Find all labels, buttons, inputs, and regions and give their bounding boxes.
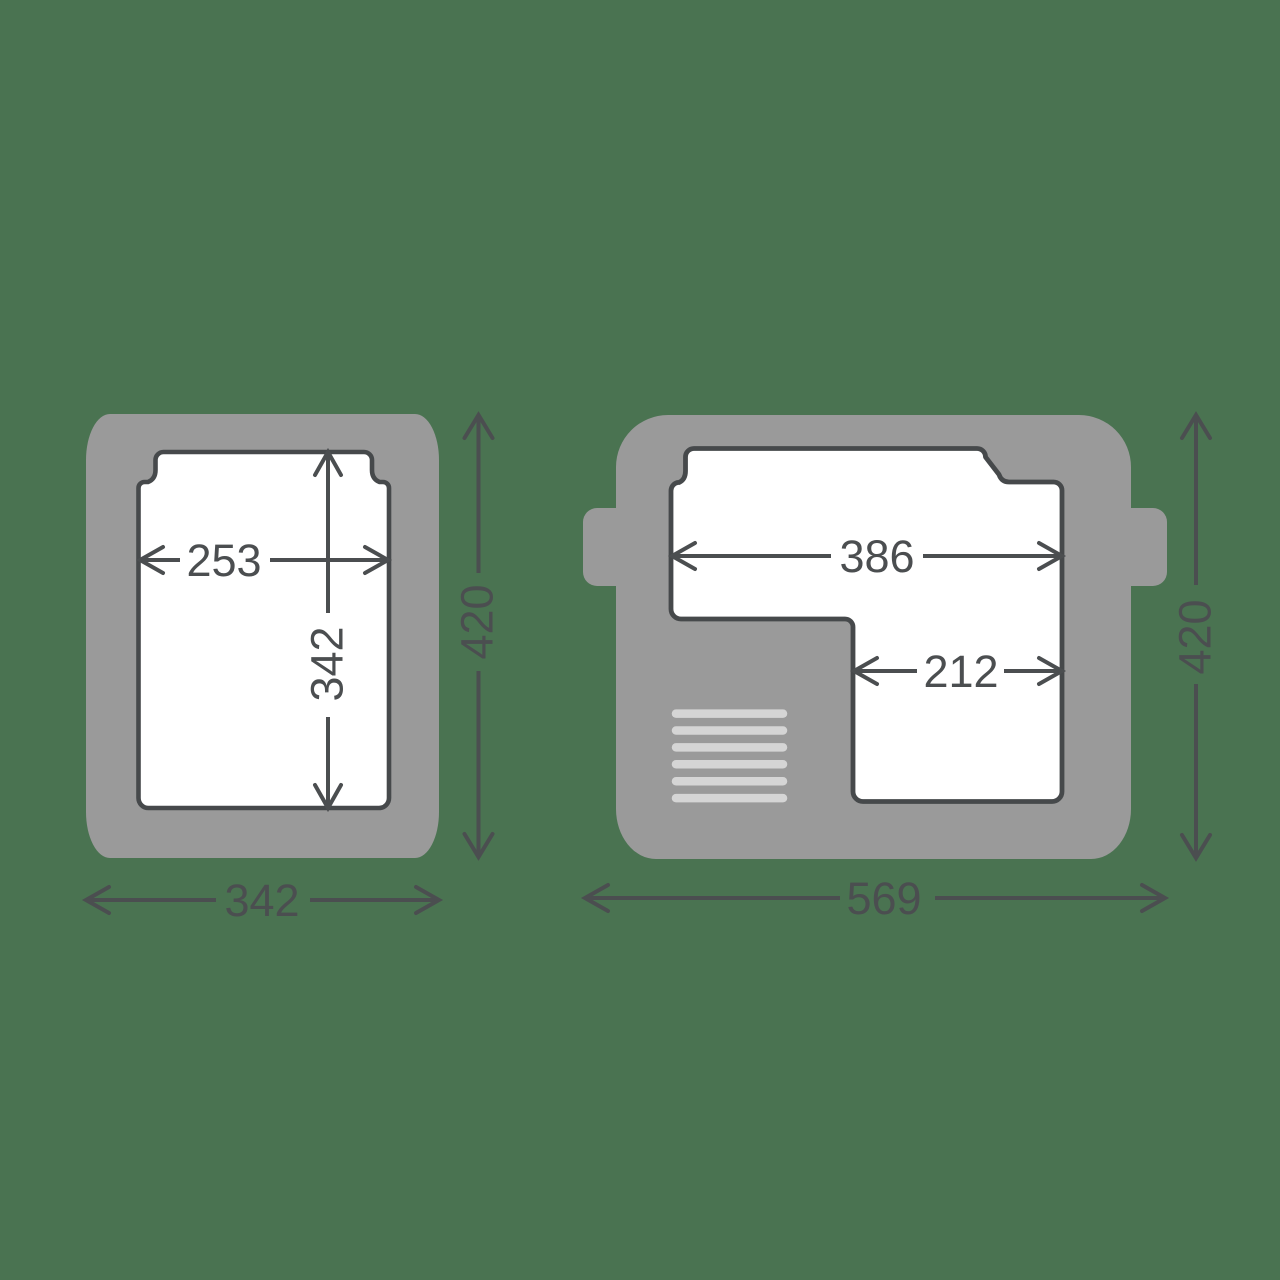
svg-text:420: 420 [452,584,503,659]
svg-text:342: 342 [224,875,299,926]
svg-text:253: 253 [186,535,261,586]
svg-text:569: 569 [846,873,921,924]
svg-text:386: 386 [839,531,914,582]
svg-text:420: 420 [1170,599,1221,674]
svg-text:342: 342 [302,626,353,701]
svg-text:212: 212 [923,646,998,697]
